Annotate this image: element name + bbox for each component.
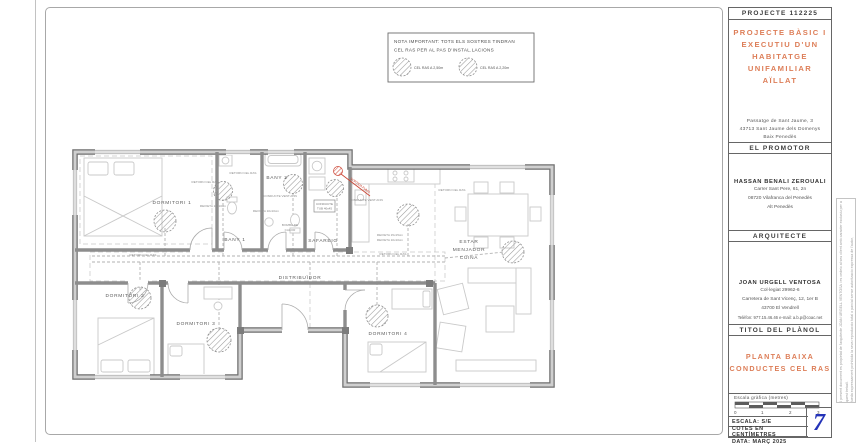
retorn-label: RETORN CEL RAS — [230, 171, 257, 175]
project-code: PROJECTE 112225 — [729, 8, 831, 20]
reixeta-label: REIXETA 15x15cm — [377, 233, 404, 237]
room-label-dormitori-4: DORMITORI 4 — [368, 331, 407, 337]
note-line-1: NOTA IMPORTANT: TOTS ELS SOSTRES TINDRAN — [394, 39, 515, 44]
units-row: COTES EN CENTÍMETRES — [729, 426, 808, 436]
room-label-bany-1: BANY 1 — [224, 237, 245, 243]
project-address-line: Passatge de Sant Jaume, 3 — [729, 118, 831, 126]
floor-plan: SORTIDA FUMS CONDUCTE TUB 40x45 DORMITOR… — [45, 7, 723, 435]
copyright-line: El present document es propietat de l'ar… — [839, 199, 850, 403]
retorn-label: RETORN CEL RAS — [192, 180, 219, 184]
project-title-section: PROJECTE BÀSIC I EXECUTIU D'UN HABITATGE… — [729, 20, 831, 142]
room-label-distribuidor: DISTRIBUÏDOR — [279, 274, 322, 281]
legend-label-250: CEL RAS A 2,50m — [414, 66, 443, 70]
project-title-line: AÏLLAT — [729, 75, 831, 87]
room-label-estar-1: ESTAR — [459, 239, 478, 245]
promoter-line: Carrer Sant Pere, 61, 2n — [729, 185, 831, 194]
room-label-dormitori-2: DORMITORI 2 — [105, 293, 144, 299]
plan-title-line: PLANTA BAIXA — [729, 351, 831, 363]
plan-title-header: TITOL DEL PLÀNOL — [729, 324, 831, 336]
room-label-bany-2: BANY 2 — [266, 175, 287, 181]
room-label-dormitori-1: DORMITORI 1 — [152, 200, 191, 206]
project-title-line: HABITATGE UNIFAMILIAR — [729, 51, 831, 75]
legend-circle-250 — [393, 58, 411, 76]
sheet-number: 7 — [813, 411, 825, 435]
sheet: { "colors": { "accent_orange": "#dd7e58"… — [0, 0, 860, 442]
scale-tick: 0 — [734, 410, 737, 415]
project-title-line: EXECUTIU D'UN — [729, 39, 831, 51]
sheet-edge-line — [35, 0, 36, 442]
legend-circle-220 — [459, 58, 477, 76]
architect-name: JOAN URGELL VENTOSA — [729, 242, 831, 286]
date-row: DATA: MARÇ 2025 — [729, 436, 808, 446]
architect-line: Col·legiat 29962-6 — [729, 286, 831, 295]
plan-title-line: CONDUCTES CEL RAS — [729, 363, 831, 375]
reixeta-label: REIXETA 10x10cm — [377, 238, 404, 242]
room-label-safareig: SAFAREIG — [308, 238, 338, 244]
note-box: NOTA IMPORTANT: TOTS ELS SOSTRES TINDRAN… — [388, 33, 534, 82]
room-label-estar-2: MENJADOR — [453, 247, 486, 253]
conducte-vent-label: CONDUCTE VENT.ANN — [349, 198, 383, 202]
promoter-line: 08720 Vilafranca del Penedès — [729, 194, 831, 203]
furniture — [84, 153, 541, 376]
room-label-dormitori-3: DORMITORI 3 — [176, 321, 215, 327]
sheet-number-cell: 7 — [806, 407, 831, 437]
architect-line: 43700 El Vendrell — [729, 304, 831, 313]
title-block: PROJECTE 112225 PROJECTE BÀSIC I EXECUTI… — [728, 7, 832, 438]
architect-contact: Telèfon: 977.15.46.46 e-mail: a.b.p@coac… — [729, 313, 831, 322]
reixeta-label: REIXETA 10x10cm — [253, 209, 280, 213]
note-line-2: CEL RAS PER AL PAS D'INSTAL.LACIONS — [394, 48, 494, 53]
promoter-header: EL PROMOTOR — [729, 142, 831, 154]
conducte-box-label2: TUB 40x45 — [317, 207, 332, 211]
legend-label-220: CEL RAS A 2,20m — [480, 66, 509, 70]
plan-title-section: PLANTA BAIXA CONDUCTES CEL RAS — [729, 336, 831, 393]
project-title-line: PROJECTE BÀSIC I — [729, 27, 831, 39]
room-label-estar-3: CUINA — [460, 255, 479, 261]
conducte-box-label1: CONDUCTE — [316, 202, 333, 206]
architect-header: ARQUITECTE — [729, 230, 831, 242]
bomba-calor-label: CALOR — [285, 228, 296, 232]
conducte-vent-label: CONDUCTE VENT.ANN — [263, 194, 297, 198]
project-address-line: Baix Penedès — [729, 134, 831, 142]
architect-line: Carretera de Sant Vicenç, 12, 1er B — [729, 295, 831, 304]
promoter-name: HASSAN BENALI ZEROUALI — [729, 154, 831, 185]
retorn-label: RETORN CEL RAS — [439, 188, 466, 192]
bomba-calor-label: BOMBA DE — [282, 223, 298, 227]
copyright-strip: El present document es propietat de l'ar… — [836, 198, 856, 403]
reixeta-label: REIXETA 10x10cm — [200, 204, 227, 208]
retorn-label: RETORN CEL RAS — [380, 252, 407, 256]
project-address-line: 43713 Sant Jaume dels Domenys — [729, 126, 831, 134]
promoter-section: HASSAN BENALI ZEROUALI Carrer Sant Pere,… — [729, 154, 831, 230]
conducte-box: CONDUCTE TUB 40x45 — [314, 200, 335, 212]
promoter-line: Alt Penedès — [729, 203, 831, 212]
architect-section: JOAN URGELL VENTOSA Col·legiat 29962-6 C… — [729, 242, 831, 324]
scale-tick: 1 — [761, 410, 764, 415]
retorn-label: RETORN CEL RAS — [130, 253, 157, 257]
scale-tick: 2 — [789, 410, 792, 415]
